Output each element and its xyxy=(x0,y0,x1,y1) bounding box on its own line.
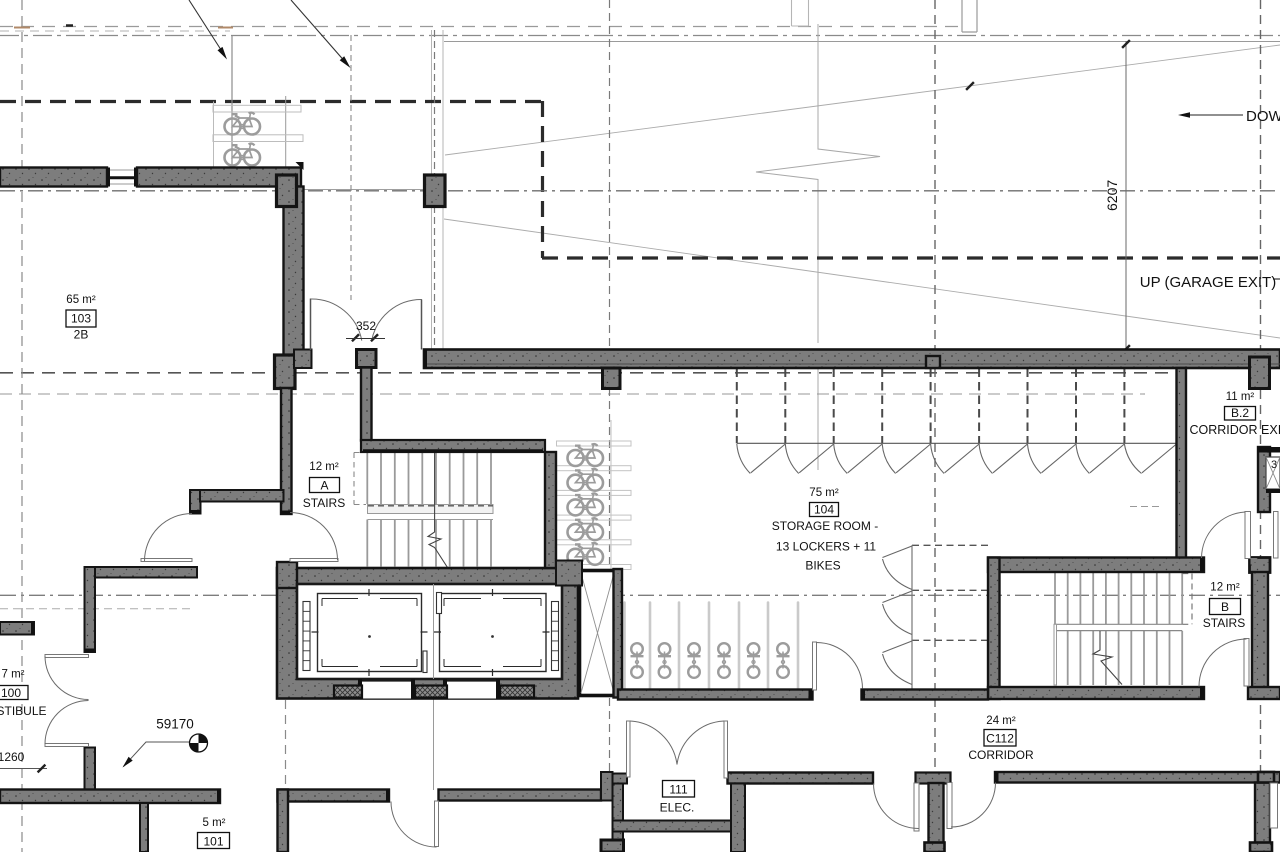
svg-text:A: A xyxy=(320,479,328,493)
svg-text:STORAGE ROOM -: STORAGE ROOM - xyxy=(772,519,878,533)
svg-text:103: 103 xyxy=(71,312,91,326)
svg-text:24 m²: 24 m² xyxy=(986,715,1016,727)
svg-text:101: 101 xyxy=(203,835,223,849)
svg-text:100: 100 xyxy=(1,686,21,700)
svg-text:DOWN: DOWN xyxy=(1246,108,1280,125)
svg-text:13 LOCKERS + 11: 13 LOCKERS + 11 xyxy=(776,540,876,554)
svg-text:352: 352 xyxy=(356,319,376,333)
svg-text:3: 3 xyxy=(1271,459,1277,471)
svg-text:12 m²: 12 m² xyxy=(1210,582,1240,594)
svg-text:C112: C112 xyxy=(986,732,1014,746)
svg-text:12 m²: 12 m² xyxy=(309,461,339,473)
svg-text:6207: 6207 xyxy=(1104,180,1120,211)
svg-text:111: 111 xyxy=(669,783,688,797)
svg-text:CORRIDOR: CORRIDOR xyxy=(968,748,1034,762)
svg-text:65 m²: 65 m² xyxy=(66,294,96,306)
svg-text:B: B xyxy=(1221,600,1229,614)
svg-text:STAIRS: STAIRS xyxy=(303,496,345,510)
svg-text:7 m²: 7 m² xyxy=(2,669,25,681)
svg-text:UP (GARAGE EXIT): UP (GARAGE EXIT) xyxy=(1140,274,1276,291)
svg-text:B.2: B.2 xyxy=(1231,406,1249,420)
svg-text:104: 104 xyxy=(814,503,834,517)
svg-text:11 m²: 11 m² xyxy=(1226,391,1255,403)
svg-text:5 m²: 5 m² xyxy=(203,817,226,829)
svg-text:BIKES: BIKES xyxy=(805,559,840,573)
svg-text:ELEC.: ELEC. xyxy=(660,801,695,815)
svg-text:2B: 2B xyxy=(74,328,89,342)
svg-text:VESTIBULE: VESTIBULE xyxy=(0,704,47,718)
svg-text:CORRIDOR EXIT: CORRIDOR EXIT xyxy=(1190,423,1280,437)
svg-text:1260: 1260 xyxy=(0,750,25,764)
svg-text:59170: 59170 xyxy=(156,717,194,732)
svg-text:75 m²: 75 m² xyxy=(809,487,839,499)
svg-text:STAIRS: STAIRS xyxy=(1203,616,1245,630)
